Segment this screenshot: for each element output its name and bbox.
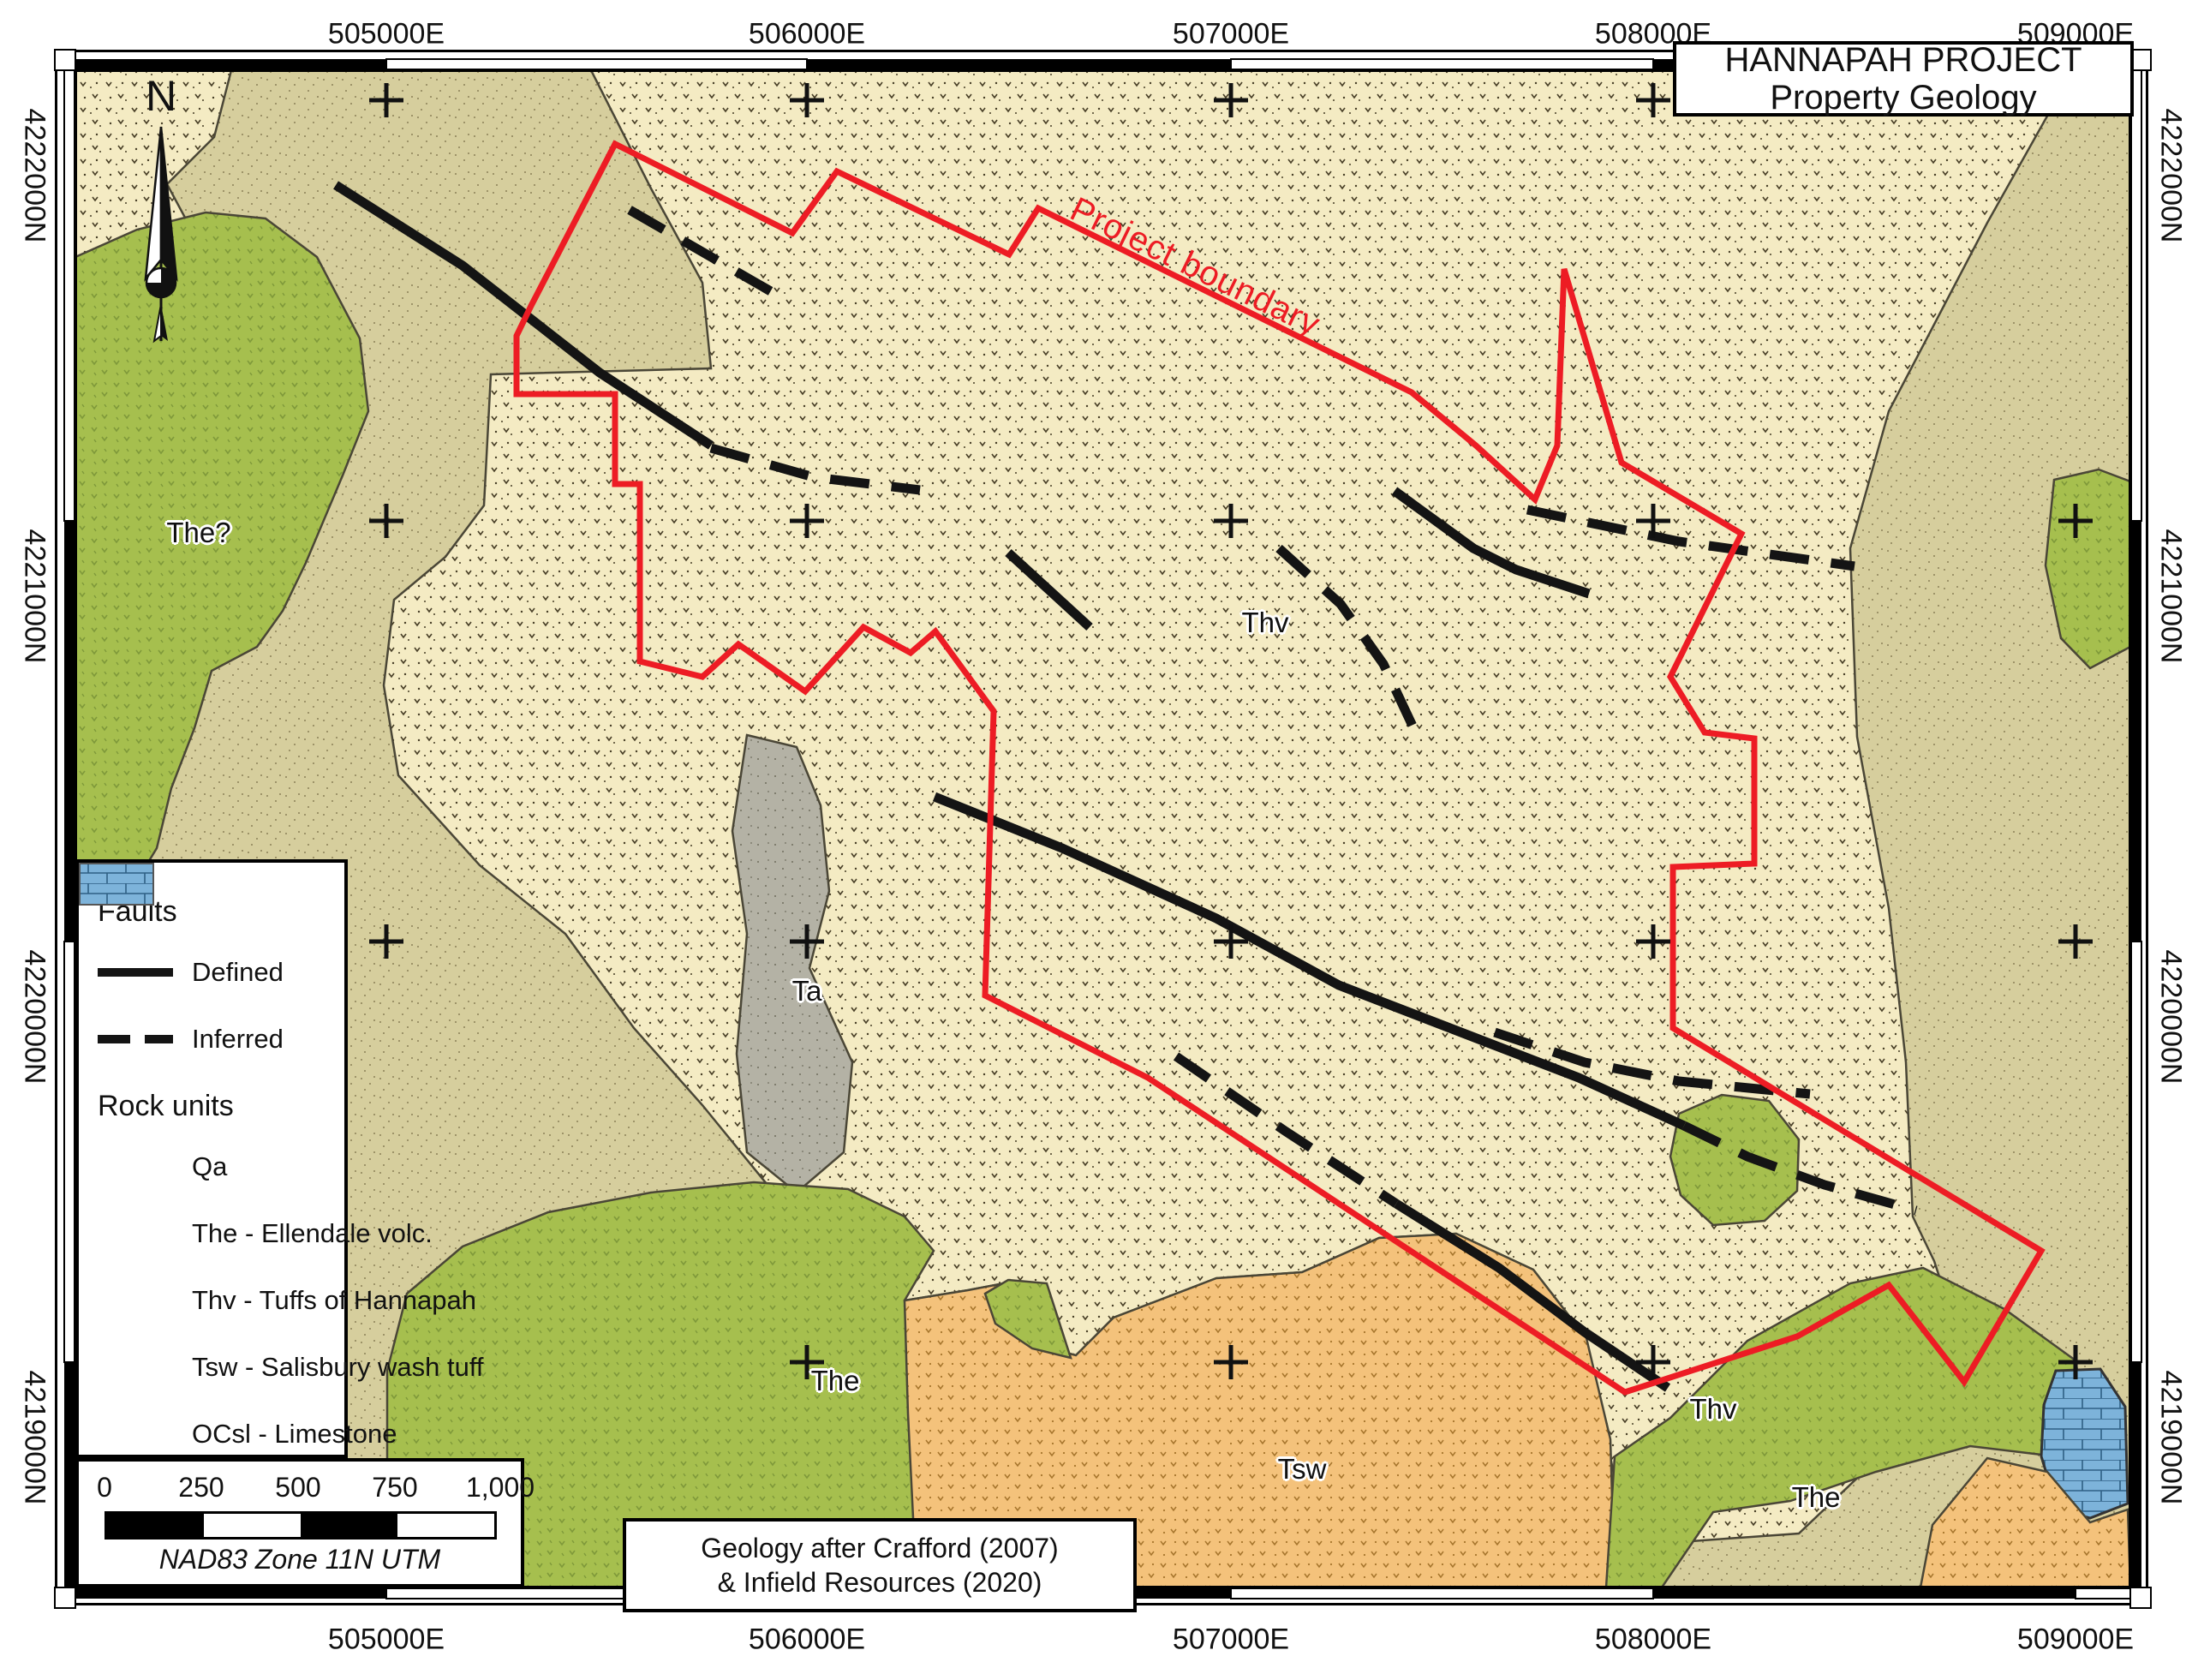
credit-box: Geology after Crafford (2007) & Infield … (623, 1518, 1137, 1612)
legend-item-fault-defined: Defined (98, 951, 344, 994)
legend-item-fault-inferred: Inferred (98, 1018, 344, 1061)
axis-label-bottom: 508000E (1595, 1623, 1711, 1657)
legend-item-qa: Qa (98, 1145, 344, 1188)
map-unit-label: The (1792, 1481, 1841, 1514)
axis-label-bottom: 506000E (749, 1623, 865, 1657)
scalebar-tick: 0 (97, 1472, 112, 1504)
axis-label-right: 4219000N (2154, 1371, 2188, 1505)
scalebar-graphic (105, 1511, 497, 1540)
map-unit-label: Thv (1689, 1393, 1736, 1426)
title-box: HANNAPAH PROJECT Property Geology (1673, 41, 2134, 117)
axis-label-bottom: 509000E (2017, 1623, 2134, 1657)
axis-label-right: 4222000N (2154, 109, 2188, 243)
map-unit-label: Ta (792, 975, 822, 1007)
datum-note: NAD83 Zone 11N UTM (79, 1544, 521, 1575)
axis-label-left: 4221000N (18, 529, 51, 664)
credit-line1: Geology after Crafford (2007) (701, 1531, 1058, 1565)
map-title-line2: Property Geology (1770, 79, 2036, 117)
map-title-line1: HANNAPAH PROJECT (1724, 41, 2082, 79)
legend-label: The - Ellendale volc. (192, 1218, 433, 1249)
axis-label-top: 507000E (1173, 18, 1289, 51)
axis-label-right: 4220000N (2154, 950, 2188, 1085)
scalebar-tick: 250 (178, 1472, 224, 1504)
legend-label: Inferred (192, 1024, 284, 1055)
legend-box: Faults Defined Inferred Rock units Qa Th… (75, 859, 348, 1458)
axis-label-top: 506000E (749, 18, 865, 51)
scalebar-tick: 750 (372, 1472, 417, 1504)
legend-item-the: The - Ellendale volc. (98, 1212, 344, 1255)
north-label: N (146, 71, 176, 121)
map-document: N Project boundary HANNAPAH PROJECT Prop… (0, 0, 2204, 1680)
axis-label-left: 4222000N (18, 109, 51, 243)
inferred-fault-line-sample (98, 1018, 173, 1061)
legend-label: Qa (192, 1151, 227, 1182)
scalebar-tick: 500 (275, 1472, 320, 1504)
legend-item-ocsl: OCsl - Limestone (98, 1413, 344, 1456)
map-unit-label: The? (166, 517, 230, 549)
legend-label: Thv - Tuffs of Hannapah (192, 1285, 476, 1316)
legend-label: Defined (192, 957, 284, 988)
axis-label-right: 4221000N (2154, 529, 2188, 664)
legend-label: Tsw - Salisbury wash tuff (192, 1352, 484, 1383)
map-unit-label: The (811, 1365, 860, 1397)
map-unit-label: Tsw (1278, 1453, 1327, 1486)
scalebar-ticks: 0 250 500 750 1,000 m (79, 1472, 521, 1503)
legend-item-tsw: Tsw - Salisbury wash tuff (98, 1346, 344, 1389)
axis-label-left: 4219000N (18, 1371, 51, 1505)
axis-label-top: 505000E (328, 18, 445, 51)
axis-label-bottom: 505000E (328, 1623, 445, 1657)
map-unit-label: Thv (1241, 607, 1288, 639)
defined-fault-line-sample (98, 951, 173, 994)
scalebar-box: 0 250 500 750 1,000 m NAD83 Zone 11N UTM (75, 1458, 524, 1587)
axis-label-left: 4220000N (18, 950, 51, 1085)
legend-item-thv: Thv - Tuffs of Hannapah (98, 1279, 344, 1322)
credit-line2: & Infield Resources (2020) (718, 1565, 1042, 1599)
legend-label: OCsl - Limestone (192, 1419, 397, 1450)
legend-rock-units-heading: Rock units (98, 1090, 344, 1123)
axis-label-bottom: 507000E (1173, 1623, 1289, 1657)
